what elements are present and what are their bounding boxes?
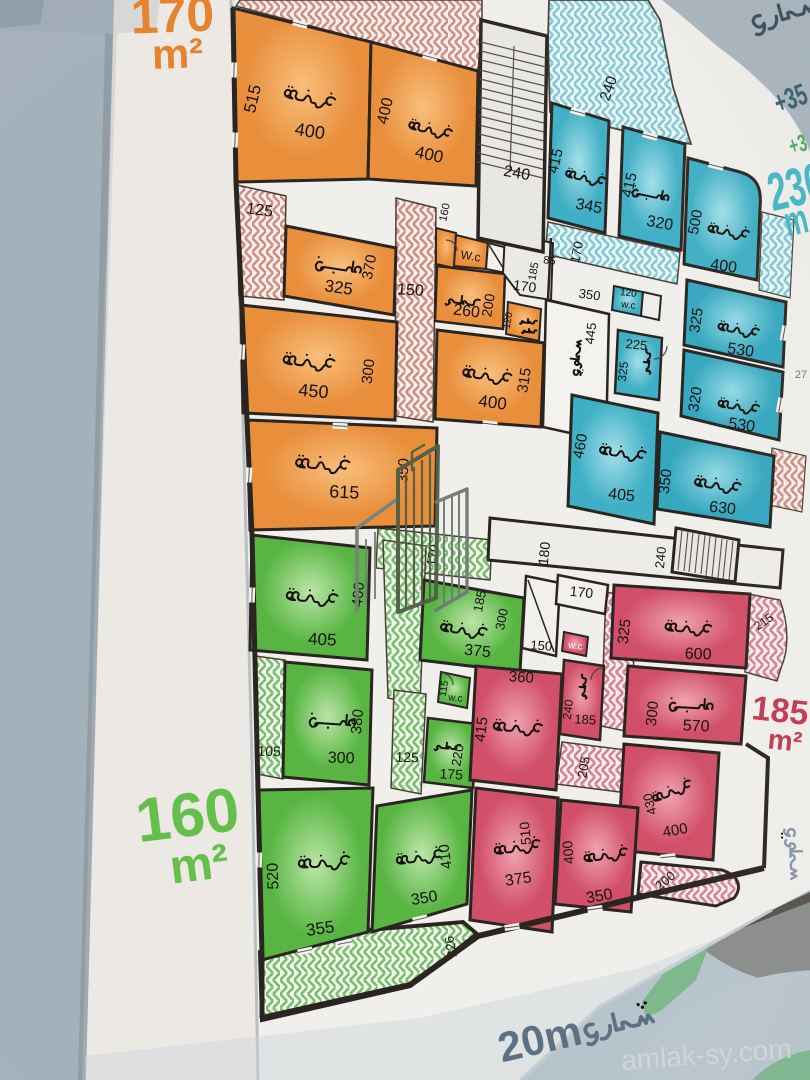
- svg-text:150: 150: [530, 637, 553, 653]
- svg-text:175: 175: [439, 765, 463, 782]
- svg-text:150: 150: [396, 281, 424, 300]
- svg-text:415: 415: [472, 716, 492, 743]
- svg-text:w.c: w.c: [567, 640, 584, 653]
- svg-text:520: 520: [265, 862, 283, 889]
- svg-text:360: 360: [508, 668, 534, 687]
- svg-text:225: 225: [625, 336, 648, 353]
- svg-text:325: 325: [615, 618, 635, 645]
- svg-text:w.c: w.c: [619, 299, 636, 312]
- svg-text:410: 410: [435, 843, 455, 870]
- svg-text:180: 180: [535, 541, 553, 566]
- svg-text:630: 630: [708, 499, 736, 519]
- svg-text:m²: m²: [151, 29, 204, 78]
- svg-text:260: 260: [452, 301, 481, 321]
- svg-text:325: 325: [615, 360, 631, 382]
- svg-text:350: 350: [656, 468, 676, 495]
- svg-text:105: 105: [257, 743, 281, 760]
- svg-text:615: 615: [329, 481, 360, 503]
- svg-text:125: 125: [395, 749, 419, 766]
- svg-text:375: 375: [463, 642, 491, 662]
- svg-text:m²: m²: [167, 835, 232, 895]
- svg-text:350: 350: [578, 286, 602, 304]
- svg-text:600: 600: [685, 646, 712, 664]
- svg-text:400: 400: [559, 840, 577, 865]
- svg-text:240: 240: [652, 546, 669, 569]
- svg-text:27: 27: [795, 369, 807, 381]
- svg-text:300: 300: [328, 750, 355, 768]
- svg-text:380: 380: [348, 708, 367, 734]
- svg-text:450: 450: [298, 380, 330, 403]
- svg-text:400: 400: [477, 391, 507, 413]
- svg-text:405: 405: [607, 486, 635, 506]
- svg-text:570: 570: [683, 718, 710, 736]
- svg-text:m²: m²: [766, 723, 803, 757]
- svg-text:325: 325: [323, 276, 354, 299]
- svg-text:185: 185: [574, 711, 596, 727]
- svg-text:510: 510: [516, 821, 534, 846]
- svg-text:405: 405: [308, 629, 337, 649]
- svg-text:300: 300: [643, 700, 663, 727]
- svg-text:355: 355: [305, 917, 336, 940]
- svg-text:445: 445: [582, 322, 600, 345]
- svg-text:120: 120: [619, 287, 637, 300]
- svg-text:170: 170: [569, 583, 594, 601]
- svg-text:300: 300: [359, 358, 379, 385]
